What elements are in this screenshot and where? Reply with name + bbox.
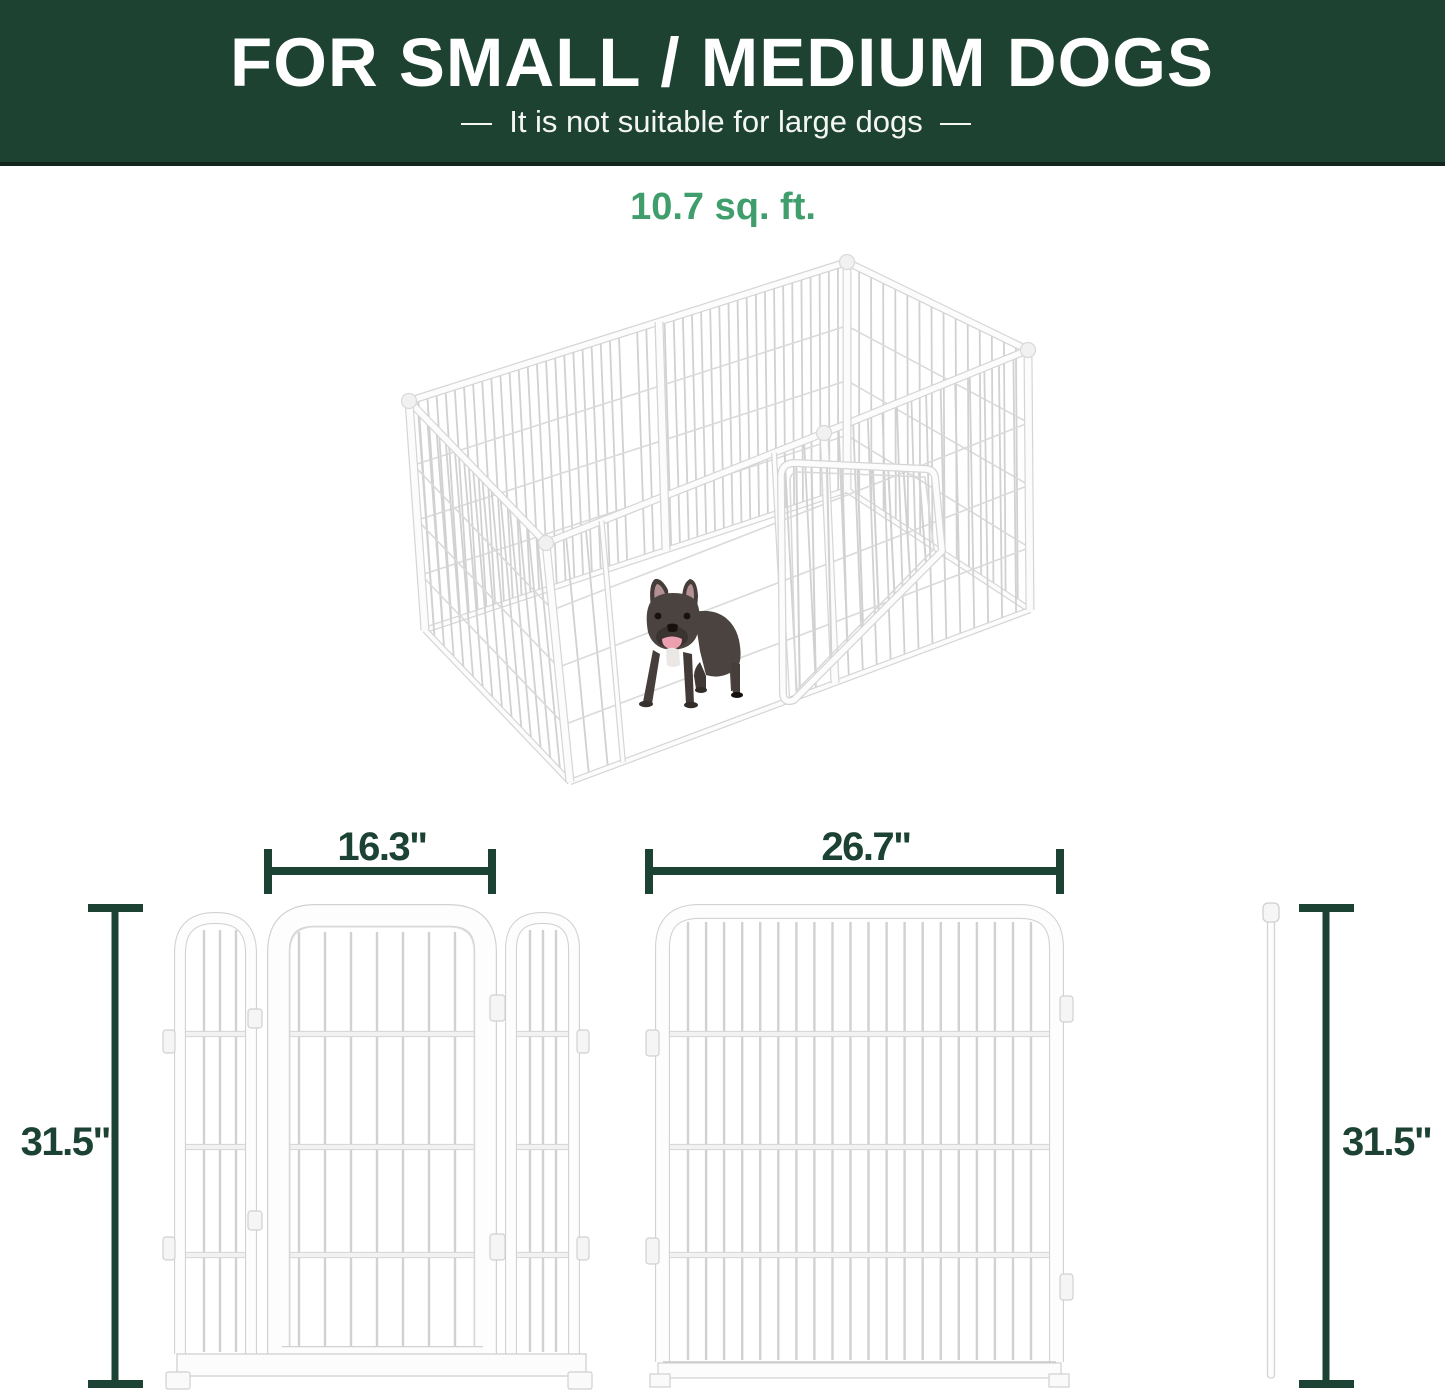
- svg-text:— It is not suitable for larg: — It is not suitable for large dogs —: [461, 104, 971, 139]
- svg-text:10.7 sq. ft.: 10.7 sq. ft.: [630, 186, 816, 228]
- svg-text:FOR SMALL / MEDIUM DOGS: FOR SMALL / MEDIUM DOGS: [230, 24, 1214, 101]
- svg-text:31.5": 31.5": [21, 1120, 110, 1164]
- svg-text:16.3": 16.3": [337, 825, 426, 869]
- svg-text:26.7": 26.7": [821, 825, 910, 869]
- svg-text:31.5": 31.5": [1342, 1120, 1431, 1164]
